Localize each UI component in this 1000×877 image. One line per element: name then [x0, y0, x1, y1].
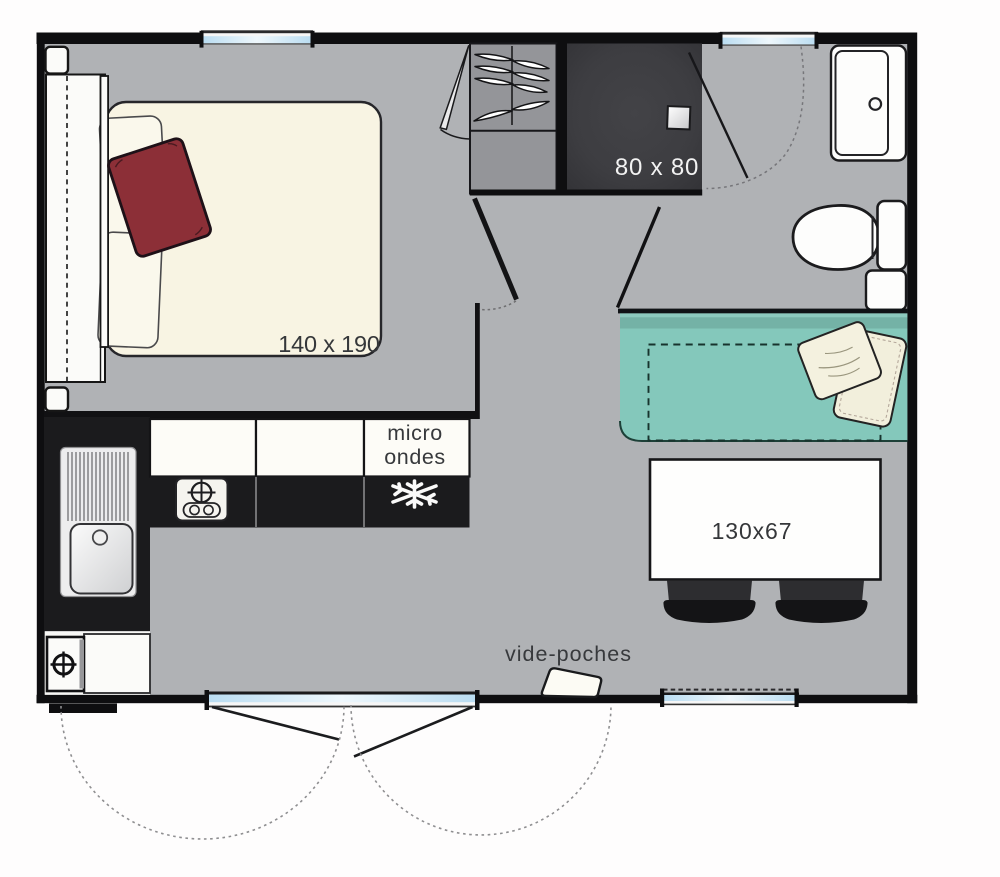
svg-text:130x67: 130x67: [712, 518, 793, 544]
svg-text:140 x 190: 140 x 190: [278, 331, 380, 357]
svg-text:vide-poches: vide-poches: [505, 642, 632, 666]
svg-text:micro: micro: [387, 421, 443, 445]
svg-text:ondes: ondes: [384, 445, 446, 469]
svg-text:80 x 80: 80 x 80: [615, 154, 699, 181]
